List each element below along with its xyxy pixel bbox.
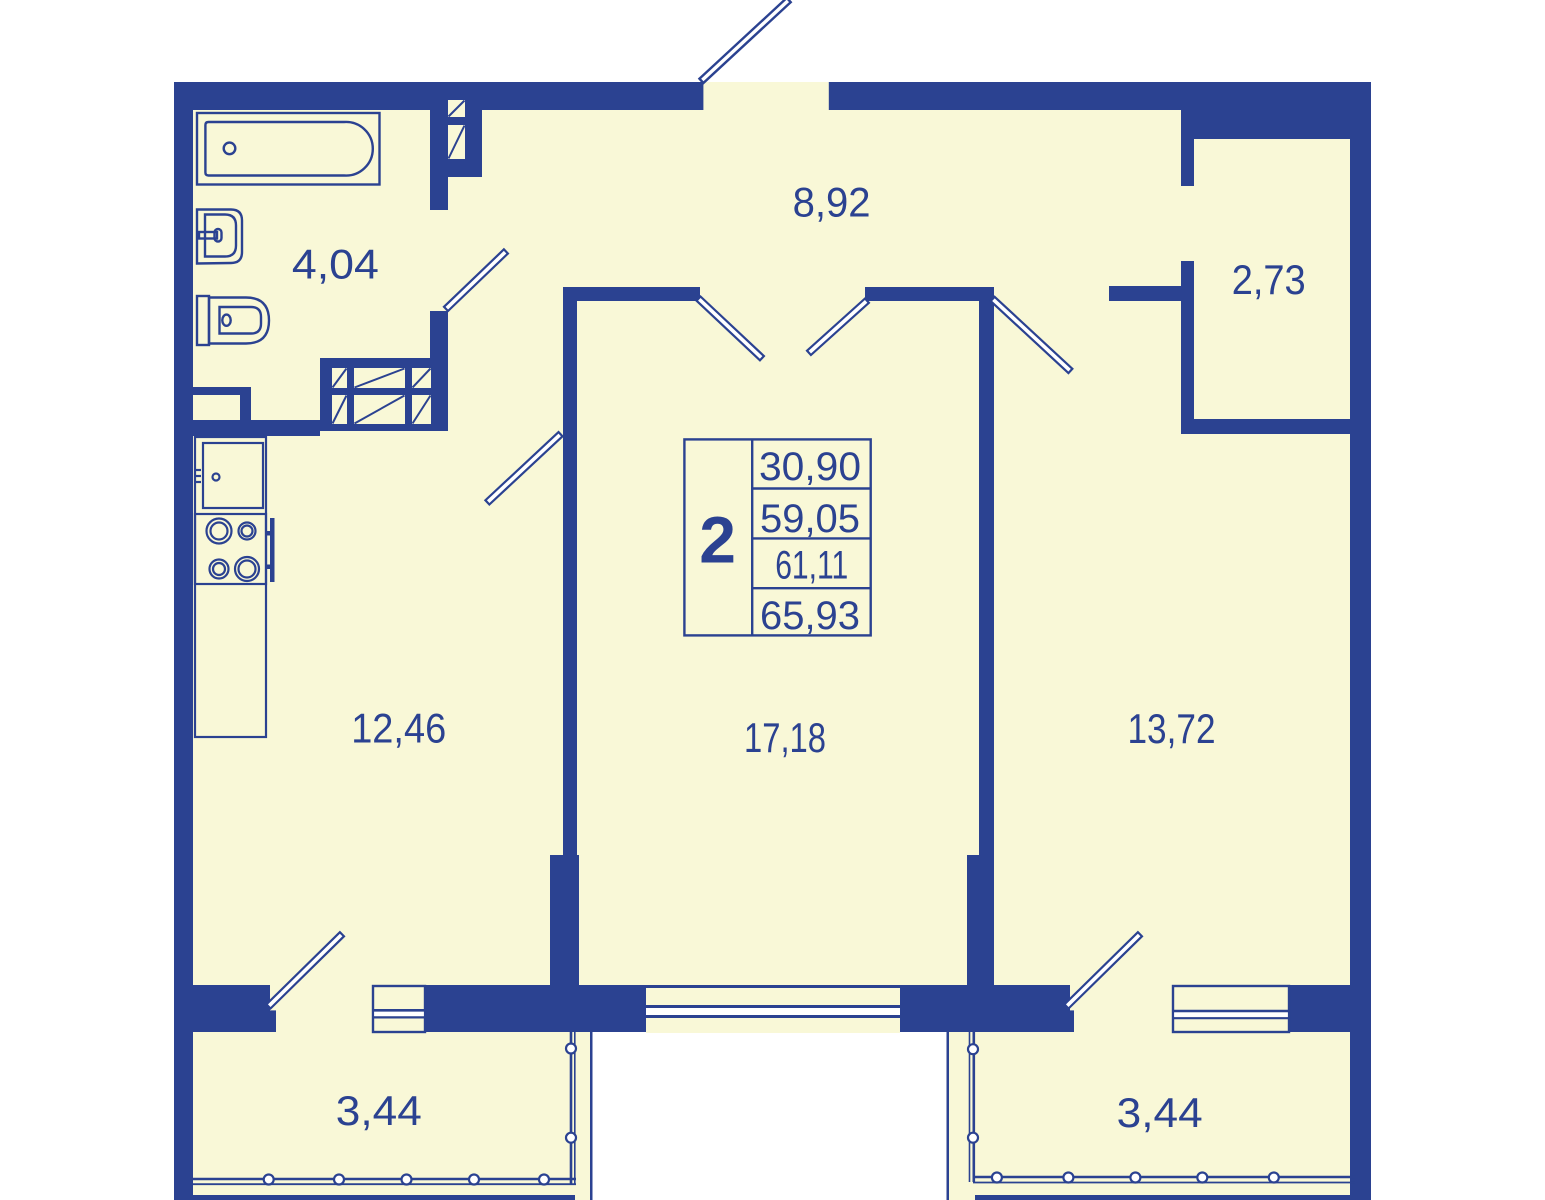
svg-text:30,90: 30,90 xyxy=(759,445,861,489)
svg-text:61,11: 61,11 xyxy=(775,544,848,588)
svg-text:2,73: 2,73 xyxy=(1232,256,1306,303)
svg-text:59,05: 59,05 xyxy=(760,497,860,541)
svg-text:12,46: 12,46 xyxy=(351,704,446,751)
svg-text:17,18: 17,18 xyxy=(744,714,826,761)
svg-text:8,92: 8,92 xyxy=(793,178,871,225)
svg-text:13,72: 13,72 xyxy=(1128,705,1216,752)
svg-text:4,04: 4,04 xyxy=(292,240,379,287)
svg-text:3,44: 3,44 xyxy=(1117,1089,1203,1136)
svg-text:65,93: 65,93 xyxy=(760,594,860,638)
svg-text:2: 2 xyxy=(699,502,736,576)
svg-text:3,44: 3,44 xyxy=(336,1087,422,1134)
